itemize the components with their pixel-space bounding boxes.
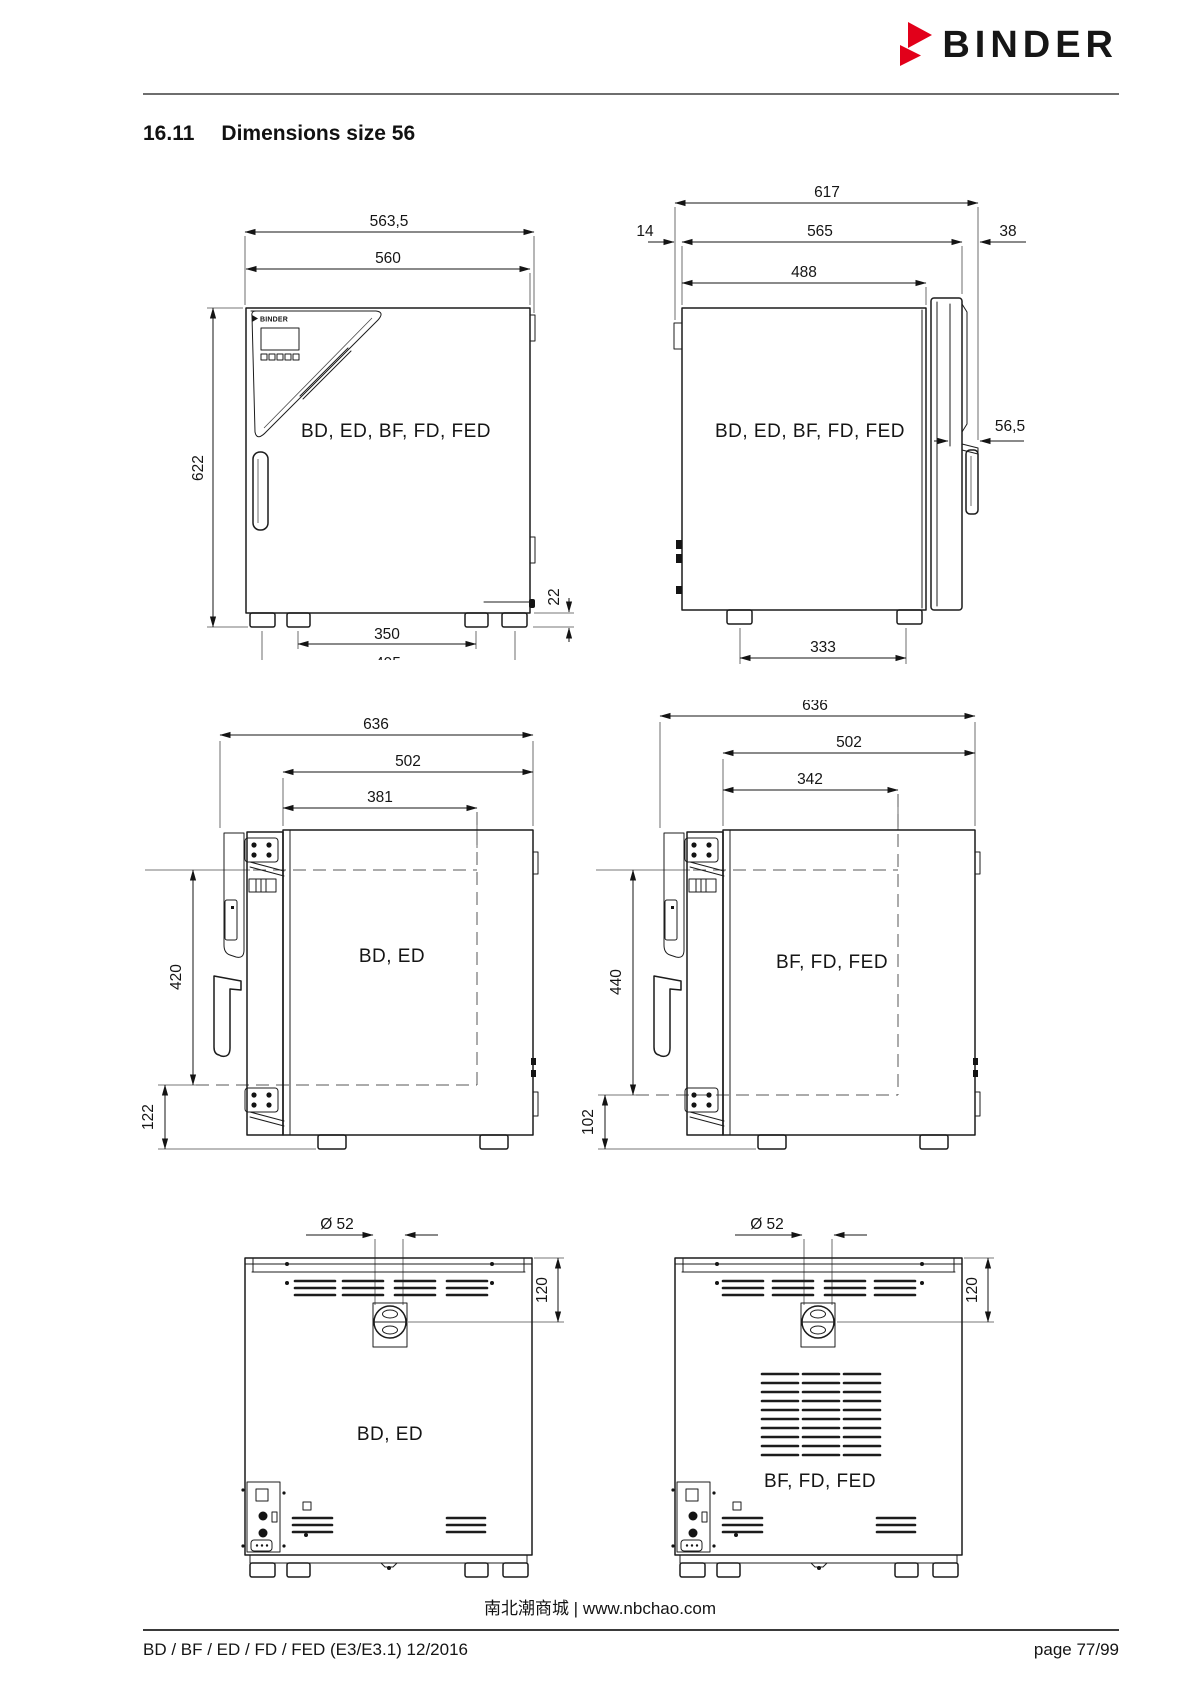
top-vents: [723, 1281, 915, 1295]
dim-port-offset: 120: [964, 1277, 981, 1303]
dimension-lines: [605, 716, 975, 1149]
dim-height-2: 102: [580, 1109, 597, 1135]
dim-feet-outer: 495: [375, 655, 401, 660]
model-label: BF, FD, FED: [776, 952, 888, 973]
extension-lines: [596, 722, 975, 1149]
bottom-vents: [293, 1518, 485, 1532]
dimension-lines: [735, 1235, 988, 1322]
section-number: 16.11: [143, 122, 194, 145]
dim-port-offset: 120: [534, 1277, 551, 1303]
dim-housing-depth: 565: [807, 223, 833, 240]
dim-total-depth: 636: [802, 700, 828, 714]
latch: [249, 879, 276, 892]
dim-port-diameter: Ø 52: [320, 1216, 354, 1233]
door-handle: [654, 976, 681, 1056]
dim-base-height: 22: [546, 588, 563, 605]
model-label: BD, ED, BF, FD, FED: [715, 421, 905, 442]
dim-feet-spacing: 333: [810, 639, 836, 656]
door-handle: [214, 976, 241, 1056]
model-label: BD, ED, BF, FD, FED: [301, 421, 491, 442]
dim-total-depth: 617: [814, 184, 840, 201]
drawing-door-open-bd-ed: 636 502 381 420 122 BD, ED: [140, 700, 580, 1170]
dim-total-width: 563,5: [370, 213, 409, 230]
hidden-lines: [196, 812, 477, 1085]
dim-handle-depth: 56,5: [995, 418, 1025, 435]
bottom-vents: [723, 1518, 915, 1532]
cabinet-side: [674, 298, 978, 624]
drawing-door-open-bf-fd-fed: 636 502 342 440 102 BF, FD, FED: [580, 700, 1060, 1170]
exhaust-port: [373, 1303, 407, 1347]
exhaust-port: [801, 1303, 835, 1347]
drawing-side-view: 617 14 565 38 488 56,5 333 BD, ED, BF, F…: [580, 170, 1060, 670]
dimension-labels: 636 502 342 440 102 BF, FD, FED: [580, 700, 888, 1135]
dim-housing-width: 560: [375, 250, 401, 267]
dim-rear-offset: 14: [636, 223, 654, 240]
dim-height: 622: [190, 455, 207, 481]
section-title: Dimensions size 56: [221, 122, 415, 145]
binder-logo-icon: [899, 22, 935, 68]
door-handle: [253, 452, 268, 530]
feet: [318, 1135, 508, 1149]
model-label: BF, FD, FED: [764, 1471, 876, 1492]
dim-height-1: 420: [168, 964, 185, 990]
drawing-rear-view-bf-fd-fed: Ø 52 120 BF, FD, FED: [580, 1185, 1060, 1600]
model-label: BD, ED: [357, 1424, 423, 1445]
cabinet-door-open: [214, 830, 538, 1149]
dim-depth-1: 502: [395, 753, 421, 770]
latch: [689, 879, 716, 892]
dim-feet-inner: 350: [374, 626, 400, 643]
dim-depth-2: 381: [367, 789, 393, 806]
dim-height-2: 122: [140, 1104, 157, 1130]
binder-logo: BINDER: [899, 22, 1118, 68]
footer-shop-link: 南北潮商城 | www.nbchao.com: [0, 1594, 1200, 1619]
center-vent-grid: [762, 1374, 880, 1455]
panel-logo-text: BINDER: [260, 317, 288, 324]
dim-depth-1: 502: [836, 734, 862, 751]
footer-divider: [143, 1629, 1119, 1631]
header-divider: [143, 93, 1119, 95]
extension-lines: [207, 236, 574, 660]
dim-depth-2: 342: [797, 771, 823, 788]
hinge-bottom: [685, 1088, 724, 1126]
door-edge: [931, 298, 978, 610]
top-vents: [295, 1281, 487, 1295]
control-panel: BINDER: [251, 311, 381, 437]
model-label: BD, ED: [359, 946, 425, 967]
dim-port-diameter: Ø 52: [750, 1216, 784, 1233]
dim-inner-depth: 488: [791, 264, 817, 281]
dim-door-offset: 38: [999, 223, 1016, 240]
page-title: 16.11Dimensions size 56: [143, 122, 415, 146]
dimension-labels: Ø 52 120 BD, ED: [320, 1216, 551, 1445]
cabinet-front: BINDER: [246, 308, 535, 627]
feet: [727, 610, 922, 624]
brand-wordmark: BINDER: [942, 24, 1118, 67]
hinge-bottom: [245, 1088, 284, 1126]
dimension-lines: [306, 1235, 558, 1322]
hidden-lines: [636, 794, 898, 1095]
cabinet-rear: [241, 1258, 532, 1577]
feet: [250, 613, 527, 627]
dimension-lines: [213, 232, 569, 660]
drawing-rear-view-bd-ed: Ø 52 120 BD, ED: [140, 1185, 580, 1600]
cabinet-rear: [671, 1258, 962, 1577]
footer-page-number: page 77/99: [143, 1640, 1119, 1660]
dim-height-1: 440: [608, 969, 625, 995]
cabinet-door-open: [654, 830, 980, 1149]
feet: [758, 1135, 948, 1149]
drawing-front-view: BINDER 563,5 560 622 350 495 22 BD, ED, …: [140, 178, 580, 660]
extension-lines: [145, 741, 533, 1149]
dim-total-depth: 636: [363, 716, 389, 733]
